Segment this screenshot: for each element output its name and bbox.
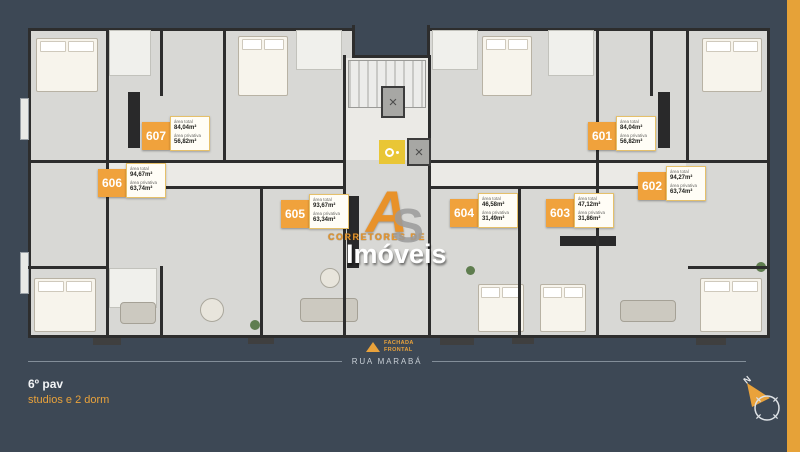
area-total-value: 84,04m² xyxy=(620,125,652,133)
unit-label-606: 606 área total 94,67m² área privativa 63… xyxy=(98,169,166,198)
wall xyxy=(160,266,163,338)
unit-area-info: área total 93,67m² área privativa 63,34m… xyxy=(309,194,349,229)
area-privativa-value: 56,82m² xyxy=(174,139,206,147)
room xyxy=(109,30,151,76)
unit-area-info: área total 47,12m² área privativa 31,86m… xyxy=(574,193,614,228)
wall xyxy=(428,160,770,163)
area-privativa-value: 63,34m² xyxy=(313,217,345,225)
wall xyxy=(28,160,346,163)
wall xyxy=(223,28,226,160)
wall xyxy=(428,55,431,338)
unit-number: 605 xyxy=(281,200,309,228)
unit-area-info: área total 84,04m² área privativa 56,82m… xyxy=(616,116,656,151)
area-total-value: 46,58m² xyxy=(482,202,514,210)
elevator-shaft: × xyxy=(407,138,431,166)
area-privativa-value: 31,86m² xyxy=(578,216,610,224)
wall xyxy=(28,266,108,269)
building-top-notch xyxy=(352,25,430,58)
street-name: RUA MARABÁ xyxy=(342,357,432,366)
facade-arrow-icon xyxy=(366,342,380,352)
floor-title: 6º pav xyxy=(28,377,63,391)
wall xyxy=(596,28,599,338)
unit-number: 601 xyxy=(588,122,616,150)
balcony-divider xyxy=(440,338,474,345)
bed xyxy=(34,278,96,332)
unit-number: 606 xyxy=(98,169,126,197)
bed xyxy=(36,38,98,92)
compass-needle xyxy=(747,383,770,407)
bed xyxy=(540,284,586,332)
balcony-ledge xyxy=(20,252,29,294)
balcony-divider xyxy=(248,338,274,344)
unit-area-info: área total 94,27m² área privativa 63,74m… xyxy=(666,166,706,201)
plant-icon xyxy=(250,320,260,330)
unit-area-info: área total 84,04m² área privativa 56,82m… xyxy=(170,116,210,151)
giro-logo-dot-icon xyxy=(396,151,399,154)
plant-icon xyxy=(466,266,475,275)
area-privativa-value: 63,74m² xyxy=(670,189,702,197)
canvas: × × 601 xyxy=(0,0,800,452)
facade-badge: FACHADA FRONTAL xyxy=(366,340,414,354)
unit-label-603: 603 área total 47,12m² área privativa 31… xyxy=(546,199,614,228)
unit-number: 607 xyxy=(142,122,170,150)
compass-ticks xyxy=(756,397,777,418)
wall xyxy=(160,28,163,96)
balcony-divider xyxy=(93,338,121,345)
bed xyxy=(700,278,762,332)
table xyxy=(200,298,224,322)
table xyxy=(320,268,340,288)
facade-line1: FACHADA xyxy=(384,340,414,347)
room xyxy=(548,30,594,76)
area-privativa-value: 31,49m² xyxy=(482,216,514,224)
sofa xyxy=(620,300,676,322)
divider-line xyxy=(432,361,746,362)
area-privativa-value: 63,74m² xyxy=(130,186,162,194)
sofa xyxy=(120,302,156,324)
kitchen-counter xyxy=(658,92,670,148)
wall xyxy=(260,186,263,338)
unit-area-info: área total 94,67m² área privativa 63,74m… xyxy=(126,163,166,198)
area-total-value: 84,04m² xyxy=(174,125,206,133)
unit-label-604: 604 área total 46,58m² área privativa 31… xyxy=(450,199,518,228)
facade-text: FACHADA FRONTAL xyxy=(384,340,414,354)
bed xyxy=(702,38,762,92)
floor-subtitle: studios e 2 dorm xyxy=(28,394,109,406)
unit-label-607: 607 área total 84,04m² área privativa 56… xyxy=(142,122,210,151)
elevator-brand-box xyxy=(379,140,405,164)
wall xyxy=(518,186,521,338)
facade-line2: FRONTAL xyxy=(384,347,414,354)
area-privativa-value: 56,82m² xyxy=(620,139,652,147)
compass-icon: N xyxy=(738,370,792,428)
balcony-divider xyxy=(512,338,534,344)
wall xyxy=(686,28,689,160)
compass-north-label: N xyxy=(741,374,752,386)
kitchen-counter xyxy=(560,236,616,246)
room xyxy=(296,30,342,70)
area-total-value: 94,67m² xyxy=(130,172,162,180)
bed xyxy=(482,36,532,96)
giro-logo-icon xyxy=(385,148,394,157)
unit-label-601: 601 área total 84,04m² área privativa 56… xyxy=(588,122,656,151)
unit-number: 602 xyxy=(638,172,666,200)
area-total-value: 94,27m² xyxy=(670,175,702,183)
unit-label-605: 605 área total 93,67m² área privativa 63… xyxy=(281,200,349,229)
unit-number: 603 xyxy=(546,199,574,227)
unit-number: 604 xyxy=(450,199,478,227)
room xyxy=(432,30,478,70)
area-total-value: 93,67m² xyxy=(313,203,345,211)
unit-label-602: 602 área total 94,27m² área privativa 63… xyxy=(638,172,706,201)
balcony-divider xyxy=(696,338,726,345)
kitchen-counter xyxy=(128,92,140,148)
area-total-value: 47,12m² xyxy=(578,202,610,210)
balcony-ledge xyxy=(20,98,29,140)
elevator-shaft: × xyxy=(381,86,405,118)
wall xyxy=(688,266,770,269)
wall xyxy=(650,28,653,96)
divider-line xyxy=(28,361,342,362)
street-label-row: RUA MARABÁ xyxy=(28,357,746,366)
sofa xyxy=(300,298,358,322)
bed xyxy=(238,36,288,96)
unit-area-info: área total 46,58m² área privativa 31,49m… xyxy=(478,193,518,228)
